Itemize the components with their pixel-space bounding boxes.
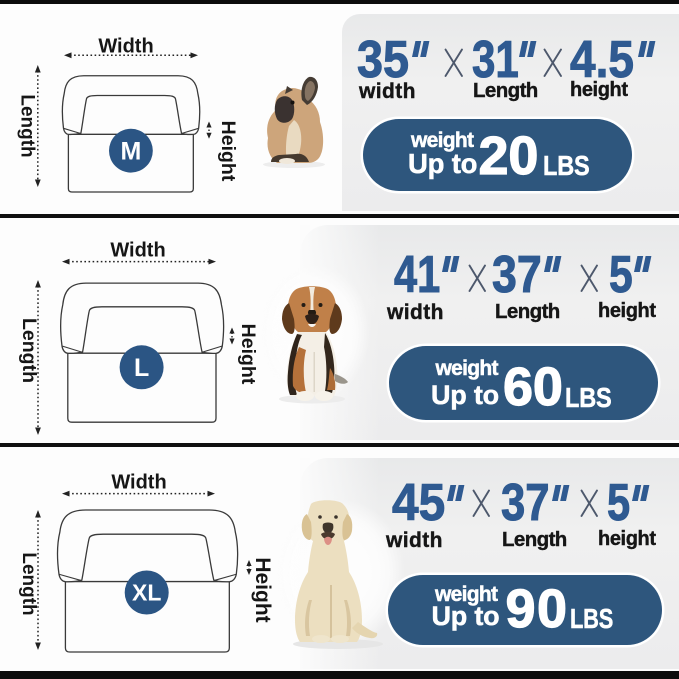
svg-text:Length: Length xyxy=(17,94,38,157)
svg-text:M: M xyxy=(120,138,141,166)
svg-text:XL: XL xyxy=(132,580,161,606)
svg-text:Width: Width xyxy=(98,36,153,58)
svg-text:Height: Height xyxy=(237,324,259,385)
svg-text:Width: Width xyxy=(111,472,166,494)
svg-text:L: L xyxy=(134,354,149,382)
svg-text:Height: Height xyxy=(217,121,239,182)
svg-text:Height: Height xyxy=(251,557,274,622)
svg-text:Length: Length xyxy=(18,318,40,383)
svg-text:Width: Width xyxy=(110,240,165,262)
svg-text:Length: Length xyxy=(18,552,39,615)
